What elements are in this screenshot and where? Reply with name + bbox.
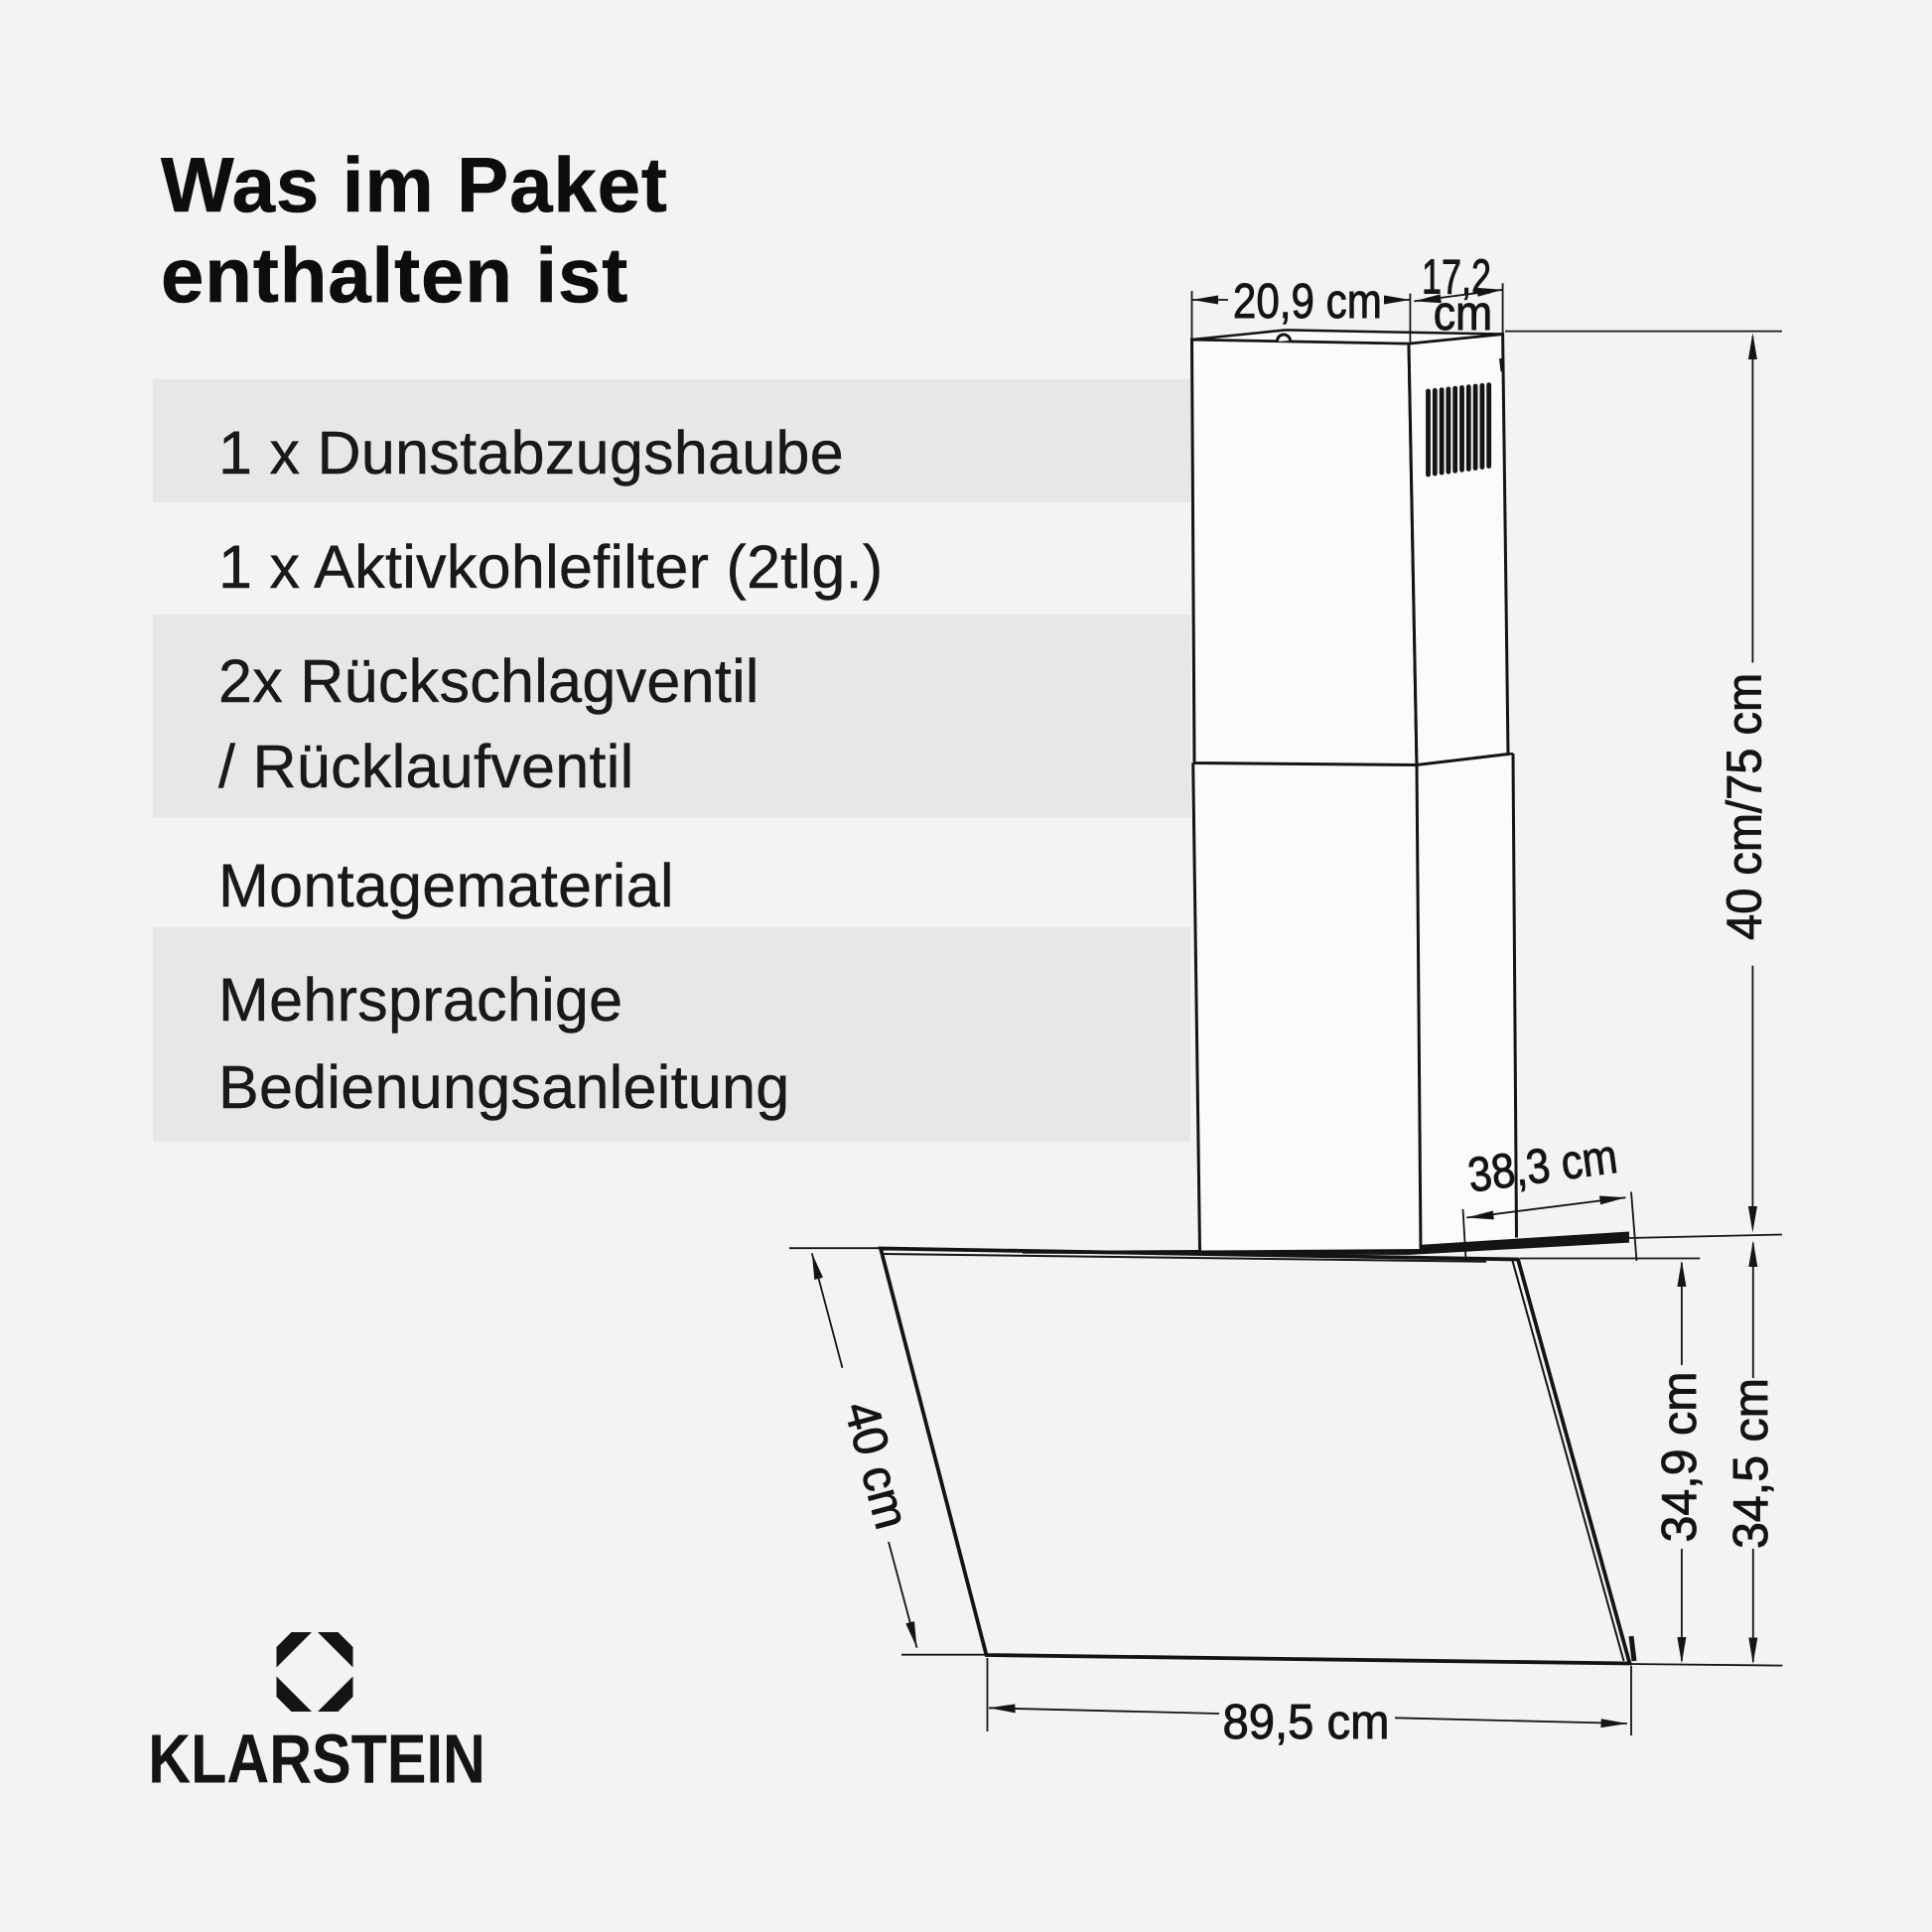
svg-text:34,5 cm: 34,5 cm [1725,1378,1778,1549]
svg-text:40 cm/75 cm: 40 cm/75 cm [1719,673,1772,940]
svg-text:KLARSTEIN: KLARSTEIN [148,1720,485,1797]
svg-text:20,9 cm: 20,9 cm [1233,275,1382,329]
svg-text:34,9 cm: 34,9 cm [1653,1372,1707,1543]
svg-text:cm: cm [1434,287,1493,341]
svg-text:40 cm: 40 cm [834,1396,919,1535]
svg-text:89,5 cm: 89,5 cm [1223,1696,1390,1749]
